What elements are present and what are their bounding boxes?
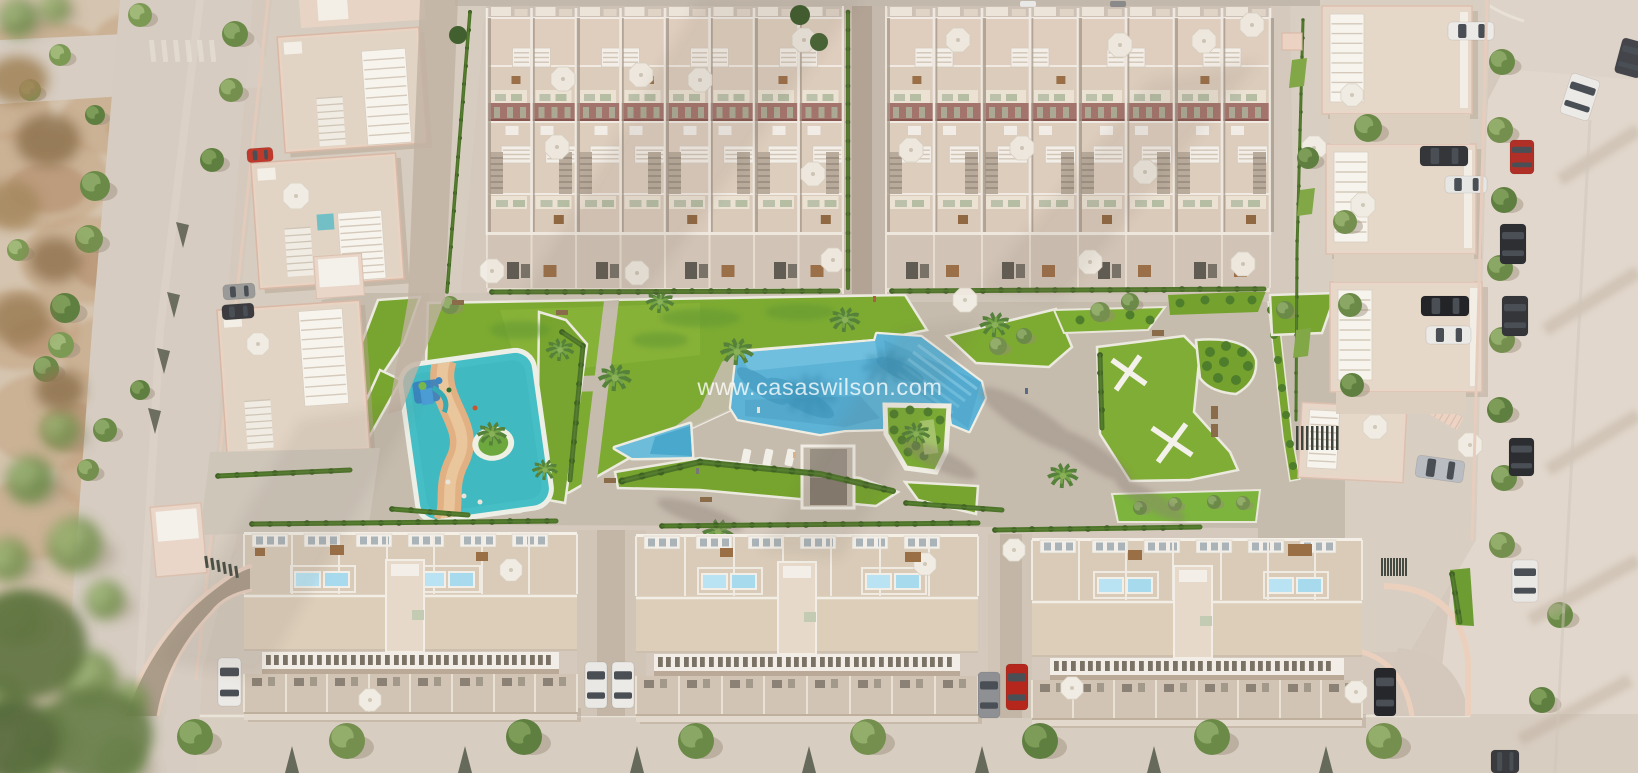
svg-text:www.casaswilson.com: www.casaswilson.com [696, 374, 942, 400]
